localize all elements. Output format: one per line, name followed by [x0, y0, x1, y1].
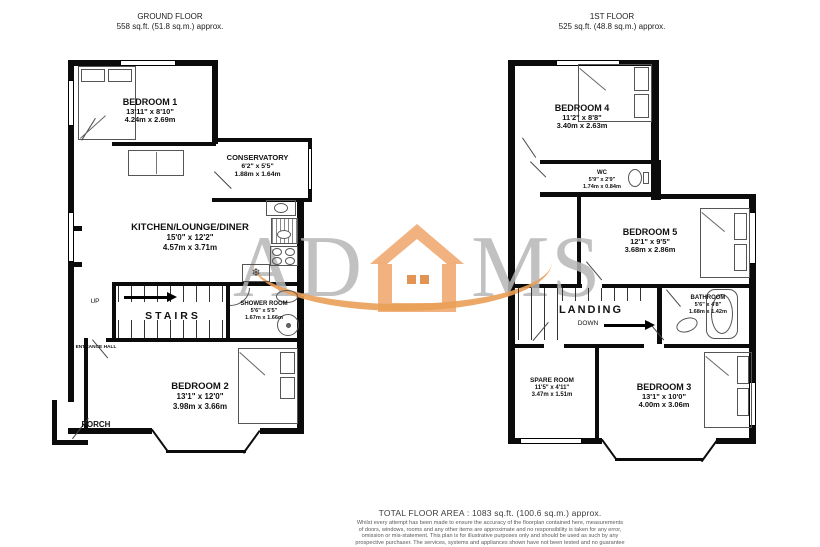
disclaimer-line: prospective purchaser. The services, sys… [230, 540, 750, 547]
stairs-icon [562, 288, 648, 301]
first-floor-title: 1ST FLOOR [482, 12, 742, 22]
bay-window-wall [166, 450, 246, 453]
total-floor-area: TOTAL FLOOR AREA : 1083 sq.ft. (100.6 sq… [230, 508, 750, 518]
room-label-spare: SPARE ROOM 11'5" x 4'11" 3.47m x 1.51m [508, 377, 596, 399]
bay-window-wall [701, 440, 718, 462]
oven-detail [274, 203, 288, 213]
ground-floor-header: GROUND FLOOR 558 sq.ft. (51.8 sq.m.) app… [40, 12, 300, 33]
porch-wall [52, 440, 88, 445]
bay-window-wall [243, 430, 261, 454]
down-label: DOWN [568, 320, 608, 328]
wall [106, 338, 304, 342]
pillow-icon [737, 356, 749, 384]
room-label-bedroom4: BEDROOM 4 11'2" x 8'8" 3.40m x 2.63m [508, 103, 656, 131]
ground-floor-area: 558 sq.ft. (51.8 sq.m.) approx. [40, 22, 300, 32]
entrance-hall-label: ENTRANCE HALL [64, 345, 128, 351]
room-label-wc: WC 5'9" x 2'9" 1.74m x 0.84m [552, 170, 652, 190]
room-label-conservatory: CONSERVATORY 6'2" x 5'5" 1.88m x 1.64m [205, 154, 310, 179]
disclaimer-line: omission or mis-statement. This plan is … [230, 533, 750, 540]
disclaimer-line: Whilst every attempt has been made to en… [230, 520, 750, 527]
wall [212, 138, 312, 142]
pillow-icon [737, 388, 749, 416]
window [68, 212, 74, 262]
wall [656, 194, 756, 199]
wall [716, 438, 756, 444]
up-arrow-icon [124, 296, 168, 299]
shower-drain [286, 323, 291, 328]
hob-ring [285, 257, 295, 265]
pillow-icon [81, 69, 105, 82]
wall [540, 160, 654, 164]
wall [112, 142, 216, 146]
wall [514, 344, 544, 348]
room-label-bedroom5: BEDROOM 5 12'1" x 9'5" 3.68m x 2.86m [576, 227, 724, 255]
chimney-stub [74, 226, 82, 231]
wall [540, 192, 656, 197]
ground-floor-title: GROUND FLOOR [40, 12, 300, 22]
wall [564, 344, 644, 348]
pillow-icon [634, 67, 649, 91]
first-floor-area: 525 sq.ft. (48.8 sq.m.) approx. [482, 22, 742, 32]
room-label-bedroom2: BEDROOM 2 13'1" x 12'0" 3.98m x 3.66m [120, 381, 280, 411]
up-label: UP [82, 298, 108, 306]
stairs-label: STAIRS [120, 310, 226, 322]
fridge-freezer-icon: ❄ [242, 264, 270, 282]
wall [260, 428, 304, 434]
wall [112, 282, 116, 340]
disclaimer-line: of doors, windows, rooms and any other i… [230, 527, 750, 534]
hob-ring [272, 257, 282, 265]
pillow-icon [734, 213, 747, 240]
landing-label: LANDING [530, 304, 652, 317]
porch-wall [52, 400, 57, 444]
window [749, 212, 756, 264]
down-arrow-icon [604, 324, 646, 327]
room-label-kitchen: KITCHEN/LOUNGE/DINER 15'0" x 12'2" 4.57m… [90, 222, 290, 252]
bay-window-wall [615, 458, 703, 461]
door-swing [522, 137, 536, 157]
pillow-icon [280, 352, 295, 374]
floorplan-page: AD MS GROUND FLOOR 558 sq.ft. (51.8 sq.m… [0, 0, 820, 547]
room-label-shower: SHOWER ROOM 5'6" x 5'5" 1.67m x 1.66m [228, 301, 300, 321]
wall [664, 344, 756, 348]
sofa-cushion-line [156, 152, 157, 174]
footer: TOTAL FLOOR AREA : 1083 sq.ft. (100.6 sq… [230, 508, 750, 547]
room-label-bedroom1: BEDROOM 1 13'11" x 8'10" 4.24m x 2.69m [80, 97, 220, 125]
room-label-bedroom3: BEDROOM 3 13'1" x 10'0" 4.00m x 3.06m [598, 382, 730, 410]
pillow-icon [734, 244, 747, 271]
first-floor-header: 1ST FLOOR 525 sq.ft. (48.8 sq.m.) approx… [482, 12, 742, 33]
pillow-icon [108, 69, 132, 82]
chimney-stub [74, 262, 82, 267]
basin-icon [674, 315, 699, 336]
stairs-icon [118, 320, 226, 338]
room-label-bathroom: BATHROOM 5'6" x 4'8" 1.68m x 1.42m [662, 295, 754, 315]
house-inner-roof-shape [387, 239, 447, 264]
window [520, 438, 582, 444]
porch-label: PORCH [70, 420, 122, 429]
window [68, 80, 74, 126]
pillow-icon [280, 377, 295, 399]
